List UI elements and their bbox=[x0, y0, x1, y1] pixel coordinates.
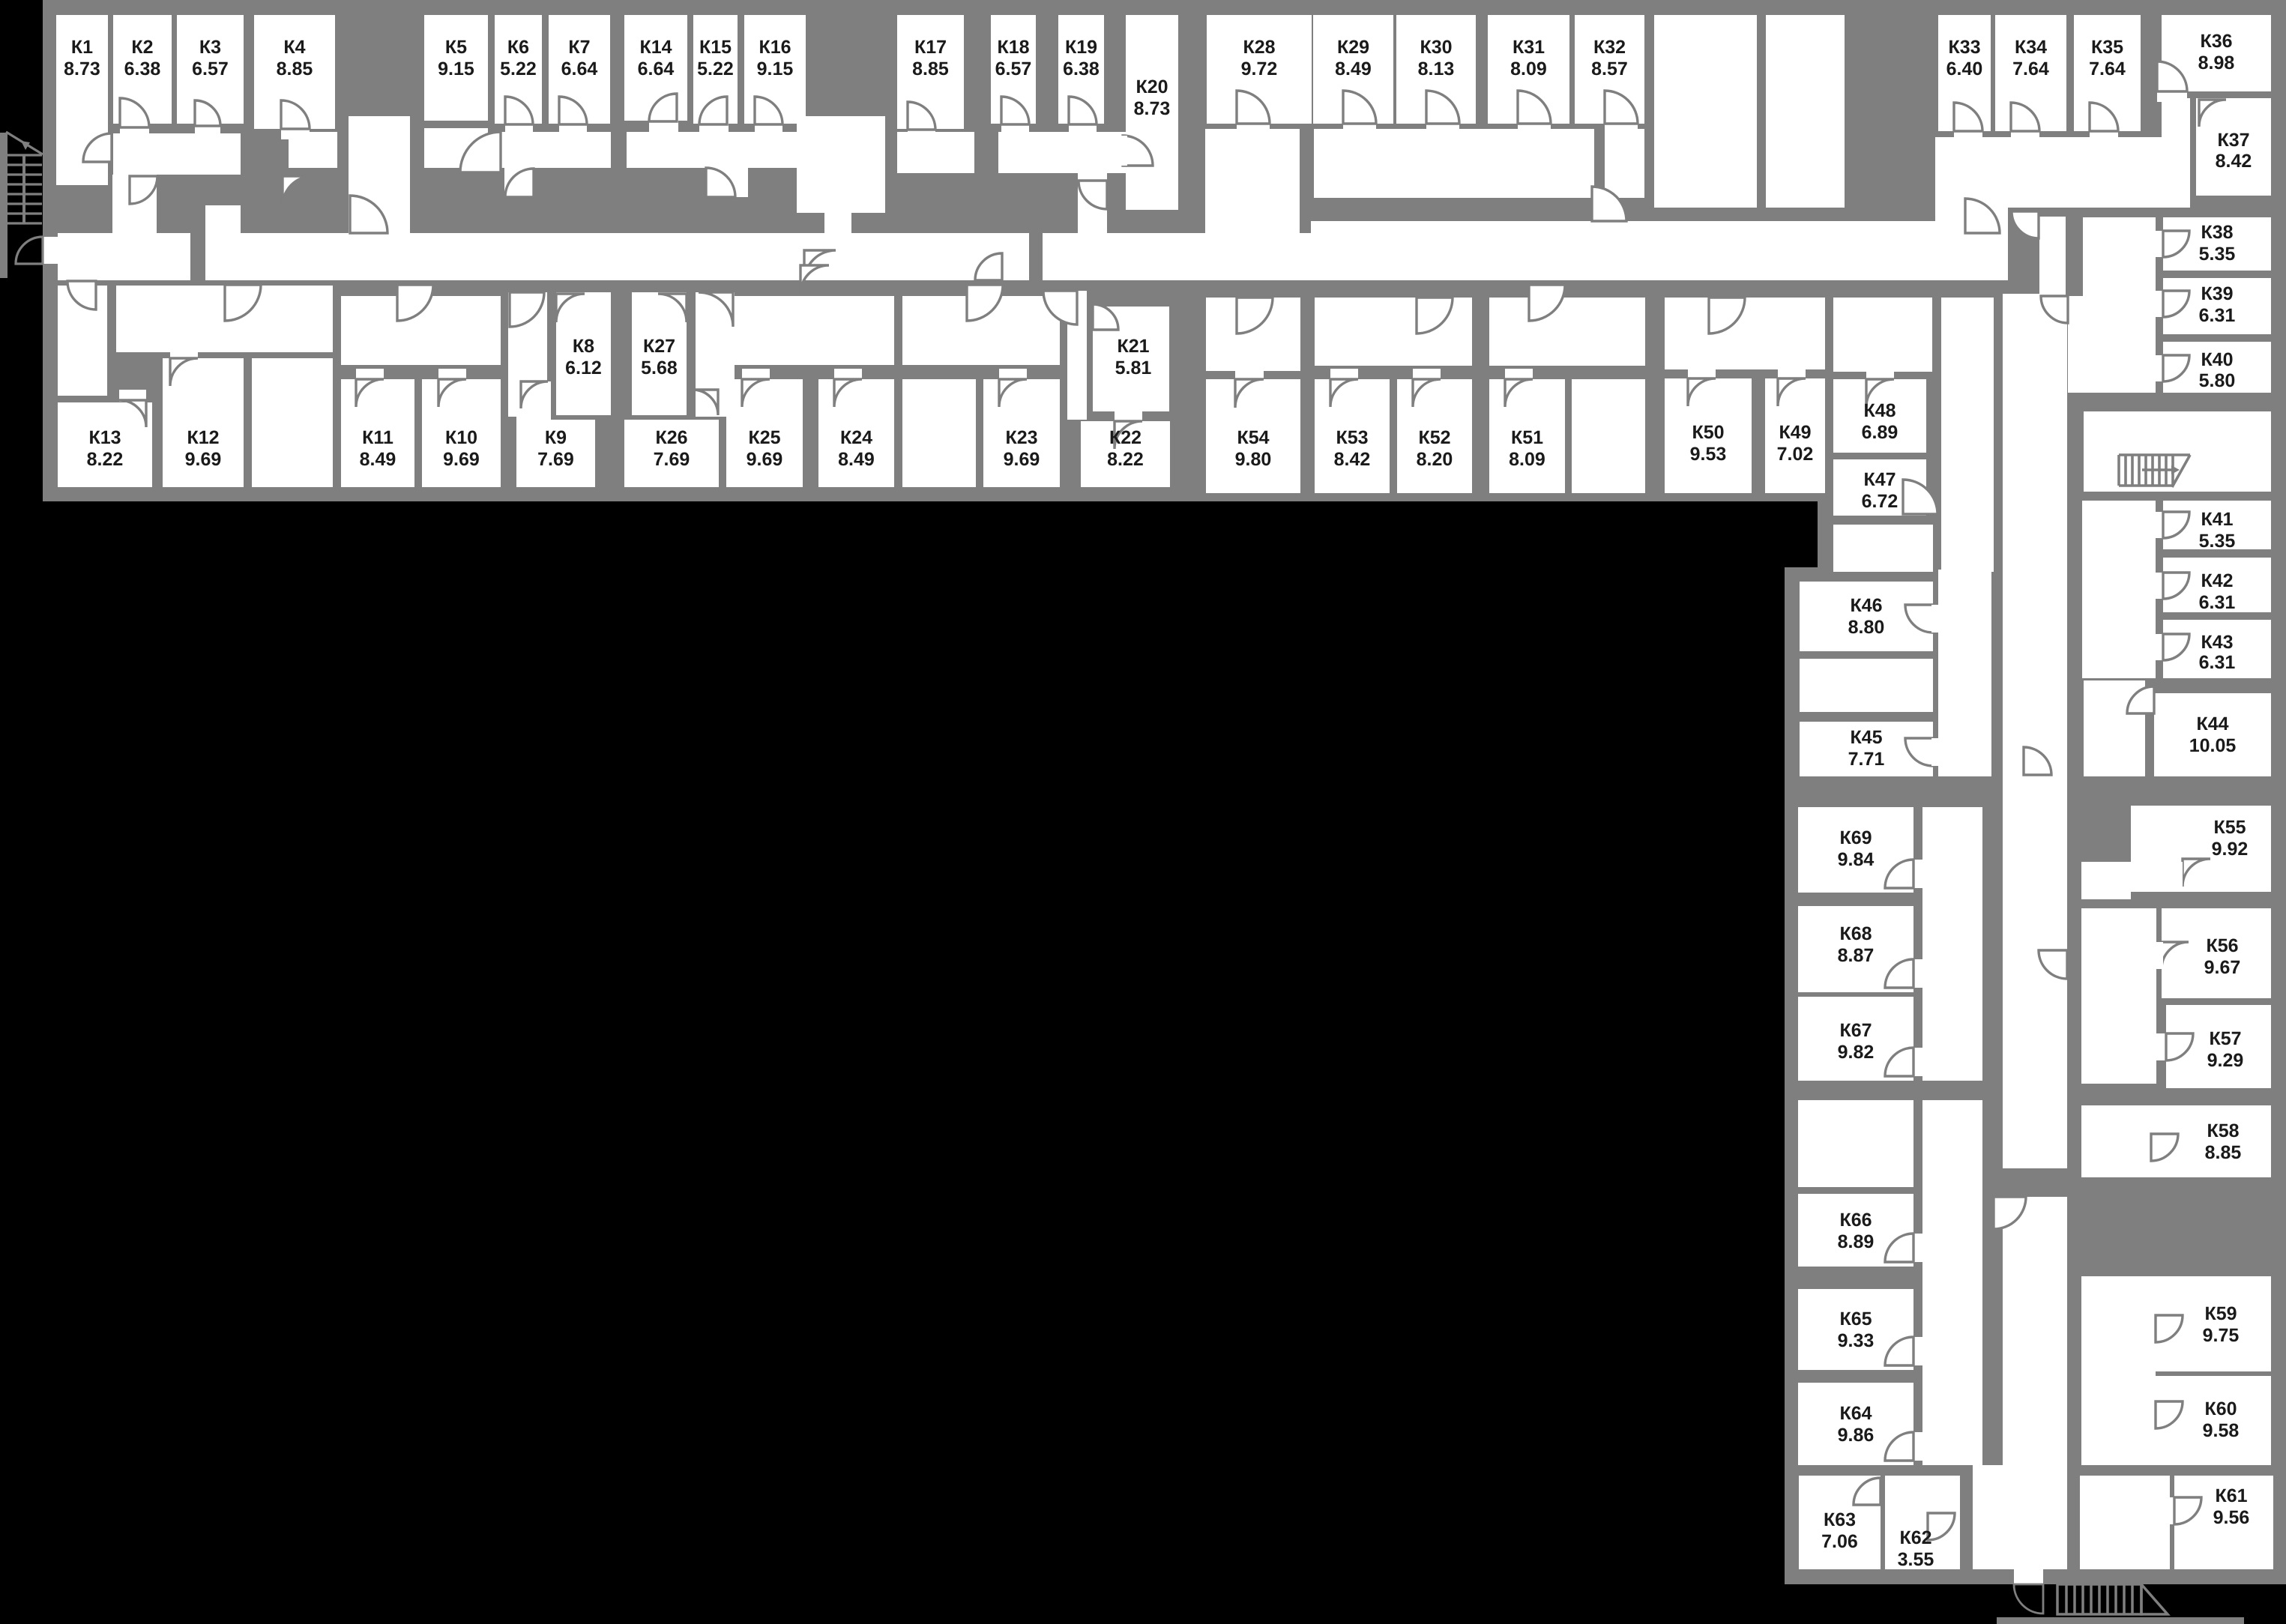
svg-text:К457.71: К457.71 bbox=[1848, 727, 1885, 770]
svg-text:К259.69: К259.69 bbox=[747, 427, 783, 470]
svg-text:К468.80: К468.80 bbox=[1848, 595, 1885, 638]
svg-text:К146.64: К146.64 bbox=[638, 37, 675, 79]
svg-text:К609.58: К609.58 bbox=[2203, 1398, 2240, 1441]
svg-text:К679.82: К679.82 bbox=[1838, 1020, 1875, 1063]
svg-text:К699.84: К699.84 bbox=[1838, 827, 1875, 870]
svg-text:К688.87: К688.87 bbox=[1838, 923, 1875, 966]
svg-text:К659.33: К659.33 bbox=[1838, 1308, 1875, 1351]
svg-text:К619.56: К619.56 bbox=[2213, 1485, 2250, 1528]
svg-text:К248.49: К248.49 bbox=[838, 427, 875, 470]
svg-text:К347.64: К347.64 bbox=[2012, 37, 2049, 79]
svg-text:К298.49: К298.49 bbox=[1335, 37, 1372, 79]
svg-text:К405.80: К405.80 bbox=[2199, 349, 2236, 391]
svg-text:К649.86: К649.86 bbox=[1838, 1403, 1875, 1446]
svg-text:К436.31: К436.31 bbox=[2199, 632, 2236, 673]
svg-text:К559.92: К559.92 bbox=[2212, 817, 2249, 860]
svg-text:К239.69: К239.69 bbox=[1004, 427, 1040, 470]
svg-text:К328.57: К328.57 bbox=[1591, 37, 1628, 79]
svg-text:К155.22: К155.22 bbox=[697, 37, 734, 79]
svg-text:К289.72: К289.72 bbox=[1241, 37, 1278, 79]
svg-text:К588.85: К588.85 bbox=[2205, 1120, 2242, 1163]
svg-text:К368.98: К368.98 bbox=[2198, 31, 2235, 73]
svg-text:К549.80: К549.80 bbox=[1235, 427, 1272, 470]
svg-text:К196.38: К196.38 bbox=[1063, 37, 1100, 79]
svg-text:К186.57: К186.57 bbox=[995, 37, 1032, 79]
svg-text:К228.22: К228.22 bbox=[1107, 427, 1144, 470]
svg-text:К415.35: К415.35 bbox=[2199, 509, 2236, 552]
svg-text:К129.69: К129.69 bbox=[185, 427, 222, 470]
svg-text:К308.13: К308.13 bbox=[1418, 37, 1455, 79]
svg-text:К169.15: К169.15 bbox=[757, 37, 794, 79]
svg-text:К208.73: К208.73 bbox=[1134, 76, 1171, 119]
svg-text:К318.09: К318.09 bbox=[1510, 37, 1547, 79]
svg-text:К215.81: К215.81 bbox=[1115, 336, 1152, 378]
svg-text:К109.69: К109.69 bbox=[443, 427, 480, 470]
svg-text:К579.29: К579.29 bbox=[2207, 1028, 2244, 1071]
svg-text:К599.75: К599.75 bbox=[2203, 1303, 2240, 1346]
svg-text:К637.06: К637.06 bbox=[1821, 1509, 1858, 1552]
svg-text:К668.89: К668.89 bbox=[1838, 1210, 1875, 1252]
svg-text:К396.31: К396.31 bbox=[2199, 283, 2236, 326]
svg-text:К426.31: К426.31 bbox=[2199, 570, 2236, 613]
svg-text:К528.20: К528.20 bbox=[1417, 427, 1453, 470]
svg-text:К518.09: К518.09 bbox=[1509, 427, 1545, 470]
svg-text:К357.64: К357.64 bbox=[2089, 37, 2126, 79]
svg-text:К486.89: К486.89 bbox=[1862, 400, 1899, 443]
svg-text:К178.85: К178.85 bbox=[912, 37, 949, 79]
svg-text:К378.42: К378.42 bbox=[2216, 130, 2252, 172]
svg-text:К138.22: К138.22 bbox=[87, 427, 124, 470]
svg-text:К509.53: К509.53 bbox=[1690, 422, 1727, 465]
svg-text:К336.40: К336.40 bbox=[1946, 37, 1983, 79]
svg-text:К275.68: К275.68 bbox=[641, 336, 678, 378]
svg-text:К538.42: К538.42 bbox=[1334, 427, 1371, 470]
svg-text:К569.67: К569.67 bbox=[2204, 935, 2241, 978]
svg-text:К623.55: К623.55 bbox=[1898, 1527, 1934, 1570]
svg-text:К267.69: К267.69 bbox=[654, 427, 690, 470]
svg-text:К497.02: К497.02 bbox=[1777, 422, 1814, 465]
svg-text:К385.35: К385.35 bbox=[2199, 222, 2236, 265]
svg-text:К476.72: К476.72 bbox=[1862, 469, 1899, 512]
svg-text:К118.49: К118.49 bbox=[360, 427, 396, 470]
